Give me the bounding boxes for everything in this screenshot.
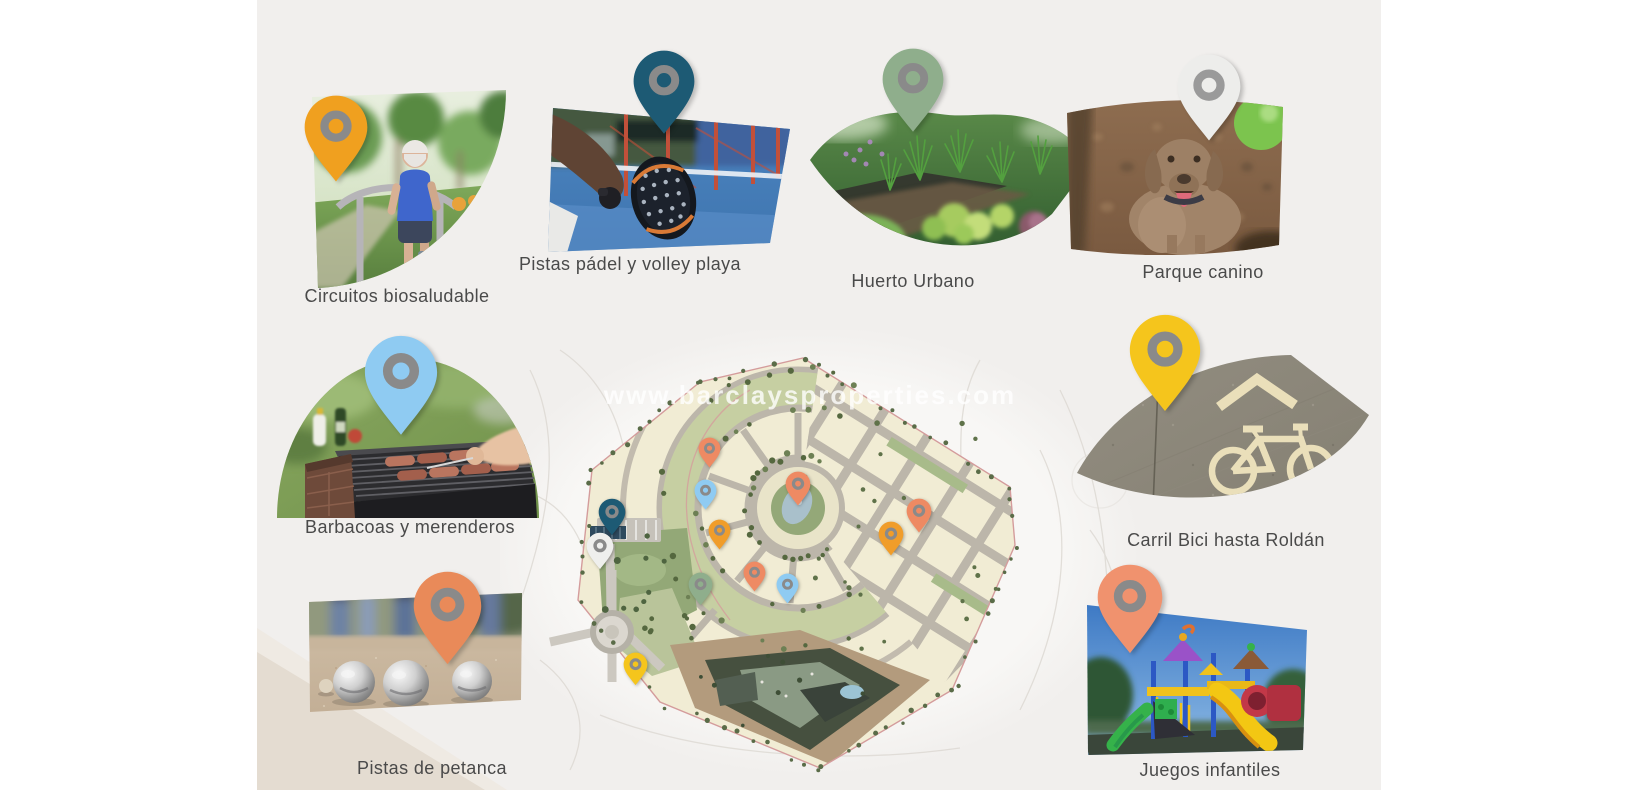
brochure-page: www.barclaysproperties.com — [0, 0, 1638, 790]
amenity-label-juegos: Juegos infantiles — [1060, 760, 1360, 781]
pin-huerto — [881, 47, 945, 133]
bike-lane-photo — [1073, 345, 1373, 523]
petanque-balls — [332, 660, 493, 708]
pin-juegos — [1096, 563, 1164, 655]
pin-carril-bici — [1128, 313, 1202, 413]
urban-garden-photo — [802, 102, 1092, 262]
amenity-label-padel: Pistas pádel y volley playa — [480, 254, 780, 275]
amenity-label-carril-bici: Carril Bici hasta Roldán — [1076, 530, 1376, 551]
pin-canino — [1176, 53, 1242, 142]
amenity-label-petanca: Pistas de petanca — [282, 758, 582, 779]
masterplan-map — [500, 330, 1140, 778]
amenity-label-barbacoas: Barbacoas y merenderos — [260, 517, 560, 538]
pin-petanca — [412, 570, 483, 666]
amenities-slide: www.barclaysproperties.com — [257, 0, 1381, 790]
amenity-label-circuitos: Circuitos biosaludable — [257, 286, 547, 307]
amenity-label-canino: Parque canino — [1053, 262, 1353, 283]
pin-padel — [632, 49, 696, 135]
pin-circuitos — [303, 94, 369, 183]
pin-barbacoas — [363, 334, 439, 437]
amenity-label-huerto: Huerto Urbano — [763, 271, 1063, 292]
dog-park-photo — [1067, 97, 1283, 255]
